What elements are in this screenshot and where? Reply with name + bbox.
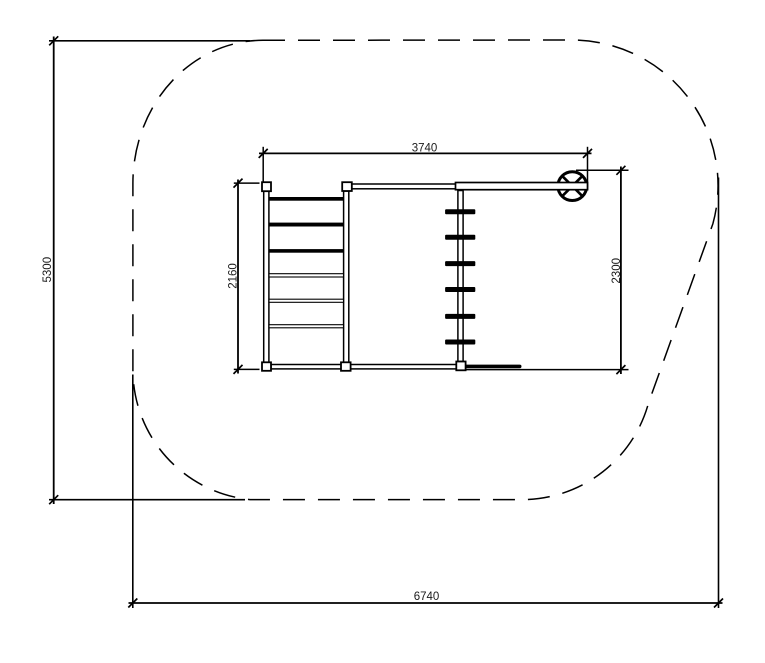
svg-text:3740: 3740 xyxy=(412,142,438,154)
svg-text:2160: 2160 xyxy=(227,263,239,289)
svg-text:6740: 6740 xyxy=(414,591,440,603)
svg-text:5300: 5300 xyxy=(42,257,54,283)
svg-text:2300: 2300 xyxy=(611,258,623,284)
